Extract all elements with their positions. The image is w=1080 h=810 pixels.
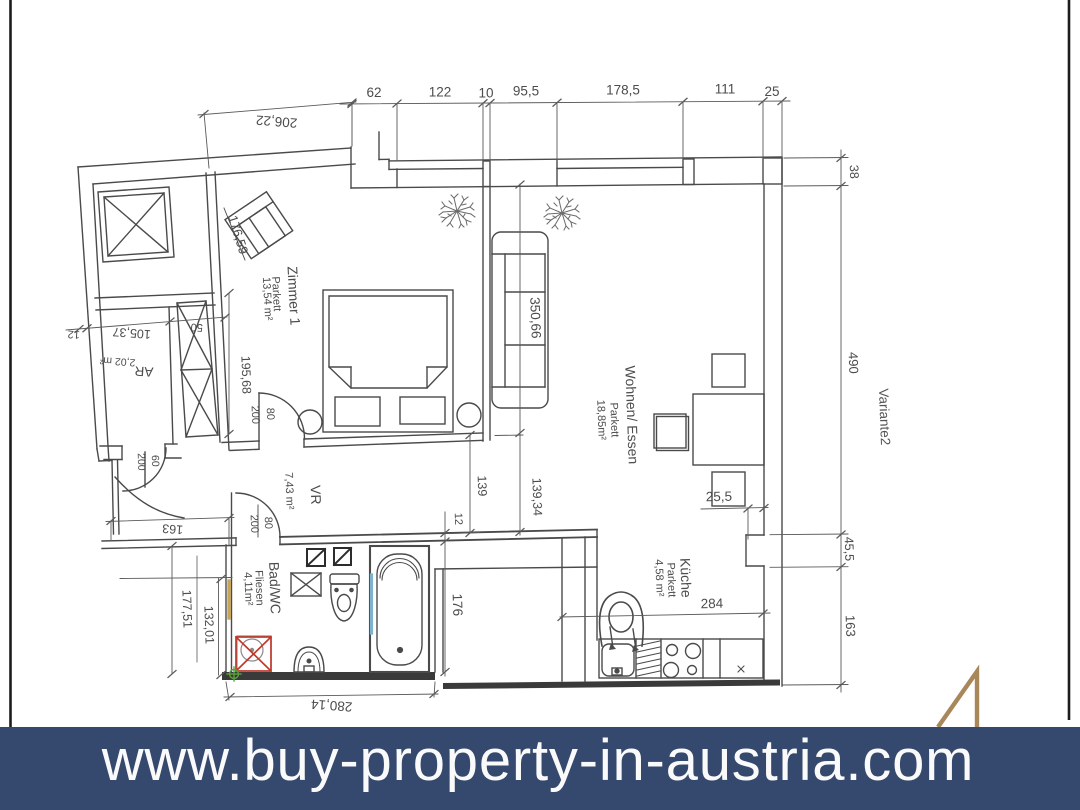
- svg-text:25: 25: [764, 84, 779, 99]
- svg-text:139: 139: [475, 475, 490, 496]
- svg-text:25,5: 25,5: [706, 489, 733, 504]
- svg-text:280,14: 280,14: [310, 697, 353, 715]
- svg-text:AR: AR: [134, 363, 154, 379]
- svg-text:Zimmer 1: Zimmer 1: [284, 266, 303, 326]
- svg-text:38: 38: [847, 165, 861, 179]
- svg-text:80: 80: [264, 408, 276, 421]
- svg-text:200: 200: [249, 406, 262, 425]
- svg-text:111: 111: [715, 82, 736, 97]
- svg-text:95,5: 95,5: [513, 84, 539, 99]
- svg-text:177,51: 177,51: [179, 590, 194, 629]
- svg-text:132,01: 132,01: [201, 606, 216, 645]
- svg-text:490: 490: [846, 352, 862, 374]
- svg-text:Variante2: Variante2: [876, 388, 893, 445]
- svg-text:105,37: 105,37: [112, 325, 151, 342]
- svg-text:12: 12: [452, 513, 464, 526]
- svg-text:195,68: 195,68: [238, 356, 253, 395]
- svg-text:60: 60: [149, 455, 161, 467]
- svg-text:80: 80: [262, 517, 274, 530]
- svg-text:50: 50: [190, 321, 203, 334]
- svg-text:350,66: 350,66: [527, 297, 543, 339]
- svg-text:163: 163: [162, 521, 184, 536]
- svg-text:VR: VR: [308, 485, 325, 505]
- svg-text:200: 200: [135, 453, 148, 471]
- svg-text:13,54 m²: 13,54 m²: [260, 277, 274, 321]
- svg-text:Bad/WC: Bad/WC: [266, 561, 284, 614]
- svg-text:284: 284: [701, 596, 724, 611]
- svg-text:10: 10: [478, 86, 493, 101]
- svg-text:4,58 m²: 4,58 m²: [652, 559, 665, 597]
- svg-text:www.buy-property-in-austria.co: www.buy-property-in-austria.com: [101, 728, 975, 793]
- svg-text:45,5: 45,5: [842, 536, 857, 561]
- svg-text:178,5: 178,5: [606, 83, 640, 98]
- svg-text:176: 176: [450, 593, 466, 616]
- svg-text:2,02 m²: 2,02 m²: [99, 354, 136, 368]
- svg-text:12: 12: [67, 328, 80, 341]
- svg-text:4,11m²: 4,11m²: [241, 572, 254, 606]
- svg-text:18,85m²: 18,85m²: [594, 400, 607, 441]
- svg-text:163: 163: [843, 615, 859, 637]
- svg-text:200: 200: [248, 515, 261, 534]
- svg-text:7,43 m²: 7,43 m²: [282, 472, 295, 510]
- svg-text:122: 122: [429, 85, 452, 100]
- svg-text:Küche: Küche: [677, 558, 694, 598]
- svg-text:62: 62: [366, 85, 381, 100]
- svg-text:139,34: 139,34: [529, 478, 544, 517]
- svg-text:Parkett: Parkett: [607, 402, 620, 437]
